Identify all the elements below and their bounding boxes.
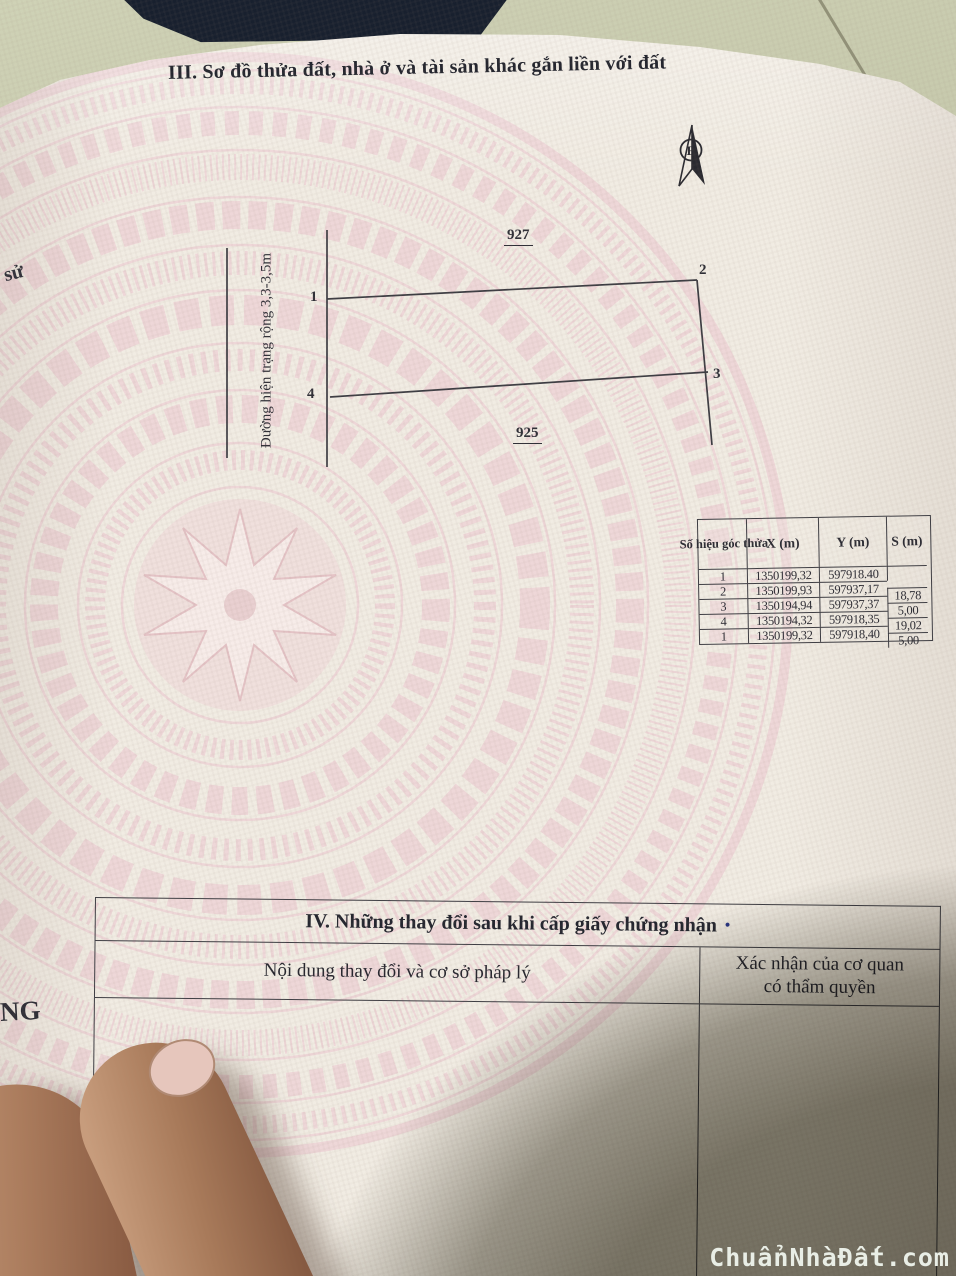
table-row-s: 19,02 — [888, 617, 928, 633]
table-row-s: 18,78 — [887, 587, 927, 603]
table-row-s: 5,00 — [887, 602, 927, 618]
corner-label-2: 2 — [699, 262, 707, 279]
table-row-y: 597918,40 — [820, 626, 888, 642]
left-edge-text-fragment-bottom: NG — [0, 995, 41, 1028]
table-row-s: 5,00 — [888, 632, 928, 648]
corner-label-3: 3 — [713, 366, 721, 383]
road-label: Đường hiện trạng rộng 3,3-3,5m — [259, 240, 276, 462]
section4-right-header: Xác nhận của cơ quan có thẩm quyền — [700, 947, 940, 1006]
table-row-corner-number: 4 — [700, 613, 748, 629]
table-row-x: 1350199,32 — [747, 567, 819, 583]
table-row-s — [887, 565, 927, 581]
north-arrow-icon: B — [668, 122, 716, 213]
table-row-x: 1350194,94 — [747, 597, 819, 613]
section4-title-bullet: • — [725, 917, 730, 934]
parcel-diagram — [200, 220, 740, 480]
coords-header-s: S (m) — [886, 516, 927, 566]
section4-left-header: Nội dung thay đổi và cơ sở pháp lý — [95, 941, 700, 1004]
adjacent-parcel-number-top: 927 — [504, 227, 533, 246]
site-watermark: ChuẩnNhàĐất.com — [709, 1243, 950, 1272]
adjacent-parcel-number-bottom: 925 — [513, 425, 542, 444]
corner-label-4: 4 — [307, 386, 315, 403]
table-row-y: 597937,17 — [819, 581, 887, 597]
section4-title-text: IV. Những thay đổi sau khi cấp giấy chứn… — [305, 910, 717, 937]
compass-letter: B — [687, 143, 696, 158]
section4-left-header-text: Nội dung thay đổi và cơ sở pháp lý — [264, 959, 531, 985]
table-row-corner-number: 3 — [699, 598, 747, 614]
section4-right-column: Xác nhận của cơ quan có thẩm quyền — [696, 947, 940, 1276]
table-row-y: 597918.40 — [819, 566, 887, 582]
corner-coordinates-table: Số hiệu góc thửa X (m) Y (m) S (m) 1 135… — [697, 515, 933, 645]
coords-header-y: Y (m) — [818, 517, 887, 567]
section4-right-header-line1: Xác nhận của cơ quan — [736, 953, 905, 978]
table-row-x: 1350199,93 — [747, 582, 819, 598]
coords-header-corner: Số hiệu góc thửa — [698, 519, 747, 569]
photo-of-land-certificate: III. Sơ đồ thửa đất, nhà ở và tài sản kh… — [0, 0, 956, 1276]
coords-header-x: X (m) — [746, 518, 819, 568]
table-row-y: 597937,37 — [819, 596, 887, 612]
table-row-corner-number: 2 — [699, 583, 747, 599]
table-row-corner-number: 1 — [699, 568, 747, 584]
table-row-x: 1350194,32 — [748, 612, 820, 628]
table-row-x: 1350199,32 — [748, 627, 820, 643]
corner-label-1: 1 — [310, 289, 318, 306]
table-row-y: 597918,35 — [820, 611, 888, 627]
section4-right-header-line2: có thẩm quyền — [764, 976, 876, 1000]
table-row-corner-number: 1 — [700, 628, 748, 644]
